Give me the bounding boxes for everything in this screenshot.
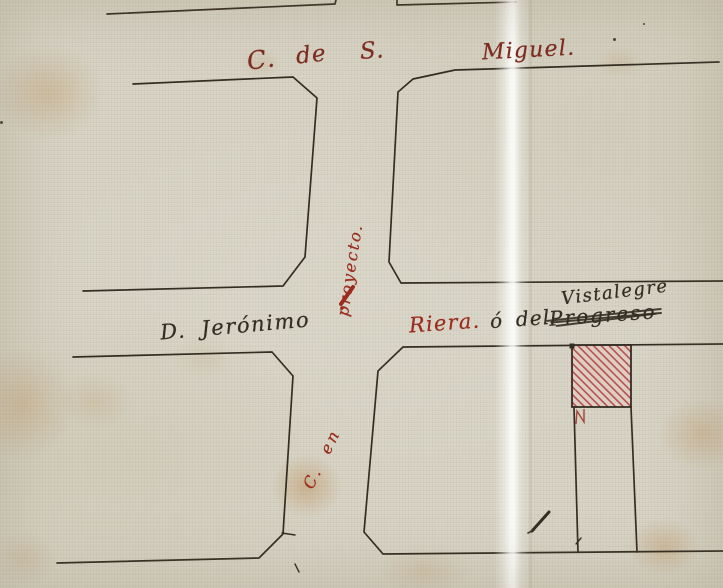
apostrophe-mark <box>295 564 299 572</box>
stroke-mark-1 <box>532 512 549 531</box>
block-outline-upper-left <box>83 77 317 291</box>
red-plot-mark <box>576 409 584 424</box>
block-outline-upper-right <box>389 62 723 283</box>
san-miguel-label-name: Miguel. <box>481 37 575 66</box>
san-miguel-label-s: S. <box>359 38 385 65</box>
street-edge-miguel-north-east <box>397 0 516 5</box>
street-edge-miguel-north-west <box>107 0 336 14</box>
plot-corner-dot <box>570 344 575 349</box>
parcel-east-line <box>631 407 637 552</box>
san-miguel-label-c: C. <box>245 44 277 75</box>
corner-tick-mark <box>282 533 295 535</box>
parcel-west-line <box>574 407 578 552</box>
block-outline-lower-left <box>57 352 293 563</box>
san-miguel-label-de: de <box>295 41 328 69</box>
hatched-plot <box>572 345 631 407</box>
riera-conjunction-label: ó del <box>489 306 551 332</box>
block-outline-lower-right <box>364 344 723 554</box>
scanned-map: C. de S. Miguel. D. Jerónimo Riera. ó de… <box>0 0 723 588</box>
